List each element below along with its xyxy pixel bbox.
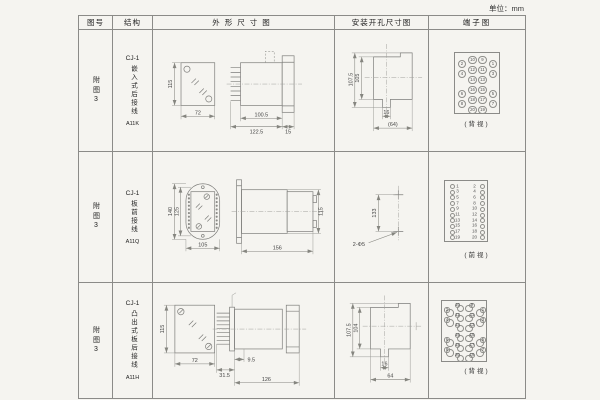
install-drawing-row2: 133 2-Φ5: [335, 152, 428, 282]
header-terminal: 端子图: [429, 16, 525, 30]
terminal-pin-number: 2: [444, 307, 449, 312]
dim-front-width-row2: 105: [198, 242, 207, 248]
terminal-pin: 1: [489, 60, 497, 68]
install-cell-row3: 107.5 104 16 64: [335, 283, 429, 398]
side-view-row1: 100.5 122.5 15: [227, 51, 302, 135]
structure-model-row3: CJ-1: [126, 300, 140, 307]
terminal-pin-number: 14: [455, 323, 460, 328]
unit-label: 单位：mm: [489, 3, 524, 14]
outline-drawing-row2: 140 125 105 156 115: [153, 152, 334, 282]
header-install: 安装开孔尺寸图: [335, 16, 429, 30]
spec-table: 图号 结构 外形尺寸图 安装开孔尺寸图 端子图 附图3 CJ-1 嵌入式后接线 …: [78, 15, 526, 399]
install-cell-row1: 107.5 105 16 (64): [335, 30, 429, 152]
terminal-pin: 12: [468, 66, 476, 74]
terminal-pin-number: 13: [469, 323, 474, 328]
dim-plate-depth-row3: 9.5: [247, 357, 255, 363]
dim-pin-depth-row3: 31.5: [219, 373, 230, 379]
terminal-pin: 14: [468, 76, 476, 84]
terminal-pin: [480, 195, 485, 200]
outline-cell-row2: 140 125 105 156 115: [153, 152, 335, 283]
install-drawing-row1: 107.5 105 16 (64): [335, 30, 428, 151]
terminal-pin-number: 4: [444, 317, 449, 322]
terminal-pin-number: 6: [444, 337, 449, 342]
dim-hole-spacing-row2: 133: [372, 209, 378, 218]
terminal-pin-number: 20: [472, 236, 477, 241]
terminal-cell-row1: 1092112114314131615651817872019 (背视): [429, 30, 525, 152]
terminal-pin-number: 1: [480, 307, 485, 312]
structure-code-row3: A11H: [126, 375, 139, 381]
terminal-view-label-row3: (背视): [429, 365, 525, 375]
terminal-pin: [480, 230, 485, 235]
terminal-pin: [450, 218, 455, 223]
terminal-pin-number: 12: [455, 313, 460, 318]
install-drawing-row3: 107.5 104 16 64: [335, 283, 428, 398]
terminal-pin-number: 10: [455, 303, 460, 308]
fig-no-row1: 附图3: [91, 76, 101, 106]
terminal-pin: 13: [478, 76, 486, 84]
terminal-pin: [450, 230, 455, 235]
terminal-pin: 6: [458, 90, 466, 98]
front-view-row2: 140 125 105: [168, 184, 220, 251]
terminal-diagram-row1: 1092112114314131615651817872019: [454, 52, 500, 114]
terminal-diagram-row2: 1234567891011121314151617181920: [444, 180, 488, 242]
terminal-pin: 19: [478, 106, 486, 114]
dim-flange-depth-row1: 15: [285, 130, 291, 136]
dim-front-width-row1: 72: [195, 110, 201, 116]
dim-width-total-row1: (64): [388, 122, 398, 128]
terminal-pin: [450, 224, 455, 229]
terminal-pin: 16: [468, 86, 476, 94]
terminal-pin: [480, 218, 485, 223]
dim-height-inner-row2: 125: [175, 207, 181, 216]
dim-height-inner-row1: 105: [355, 74, 361, 83]
terminal-pin-number: 7: [480, 347, 485, 352]
structure-cell-row2: CJ-1 板前接线 A11Q: [113, 152, 153, 283]
structure-cell-row1: CJ-1 嵌入式后接线 A11K: [113, 30, 153, 152]
terminal-pin: [450, 190, 455, 195]
terminal-pin: 17: [478, 96, 486, 104]
dim-height-outer-row2: 140: [168, 207, 174, 216]
terminal-pin: 2: [458, 60, 466, 68]
structure-desc-row2: 板前接线: [127, 200, 137, 234]
terminal-pin: 8: [458, 100, 466, 108]
install-cell-row2: 133 2-Φ5: [335, 152, 429, 283]
terminal-pin: [480, 201, 485, 206]
dim-total-depth-row3: 126: [262, 377, 271, 383]
terminal-pin-number: 18: [455, 343, 460, 348]
terminal-pin: [480, 235, 485, 240]
terminal-diagram-row3: 1092112114314131615651817872019: [441, 300, 487, 362]
front-view-row1: 115 72: [168, 63, 215, 120]
terminal-pin: [480, 190, 485, 195]
terminal-pin: 9: [478, 56, 486, 64]
terminal-pin: 7: [489, 100, 497, 108]
terminal-pin-number: 11: [469, 313, 474, 318]
side-view-row3: 9.5 31.5 126: [213, 293, 306, 386]
terminal-pin: [480, 213, 485, 218]
side-view-row2: 156 115: [232, 180, 325, 254]
outline-drawing-row1: 115 72 100.5 122.5 15: [153, 30, 334, 151]
dim-front-height-row1: 115: [168, 80, 174, 89]
terminal-pin: [450, 207, 455, 212]
structure-code-row2: A11Q: [126, 239, 140, 245]
terminal-pin: [450, 201, 455, 206]
header-structure: 结构: [113, 16, 153, 30]
terminal-pin-number: 8: [444, 347, 449, 352]
dim-height-outer-row3: 107.5: [346, 323, 352, 337]
terminal-view-label-row1: (背视): [429, 118, 525, 128]
terminal-pin: 4: [458, 70, 466, 78]
terminal-pin: 10: [468, 56, 476, 64]
dim-height-outer-row1: 107.5: [348, 73, 354, 87]
dim-height-inner-row3: 104: [353, 324, 359, 333]
structure-cell-row3: CJ-1 凸出式板后接线 A11H: [113, 283, 153, 398]
terminal-pin: [480, 184, 485, 189]
terminal-pin: 3: [489, 70, 497, 78]
terminal-pin: 20: [468, 106, 476, 114]
terminal-cell-row3: 1092112114314131615651817872019 (背视): [429, 283, 525, 398]
fig-no-row3: 附图3: [91, 326, 101, 356]
terminal-pin-number: 3: [480, 317, 485, 322]
front-view-row3: 115 72: [160, 305, 215, 367]
terminal-pin: 15: [478, 86, 486, 94]
terminal-pin: 11: [478, 66, 486, 74]
terminal-pin: [450, 195, 455, 200]
structure-desc-row3: 凸出式板后接线: [127, 310, 137, 370]
fig-no-cell-row1: 附图3: [79, 30, 113, 152]
terminal-pin: [450, 235, 455, 240]
dim-slot-width-row3: 16: [381, 362, 387, 368]
terminal-view-label-row2: (前视): [429, 249, 525, 259]
terminal-pin: 5: [489, 90, 497, 98]
structure-code-row1: A11K: [126, 121, 139, 127]
structure-model-row1: CJ-1: [126, 55, 140, 62]
terminal-pin: [450, 213, 455, 218]
dim-front-height-row3: 115: [160, 325, 166, 334]
fig-no-row2: 附图3: [91, 202, 101, 232]
structure-desc-row1: 嵌入式后接线: [127, 65, 137, 116]
terminal-pin-number: 20: [455, 353, 460, 358]
dim-side-height-row2: 115: [318, 207, 324, 216]
dim-width-total-row3: 64: [387, 374, 393, 380]
header-outline: 外形尺寸图: [153, 16, 335, 30]
outline-cell-row3: 115 72 9.5 31.5 126: [153, 283, 335, 398]
terminal-pin-number: 17: [469, 343, 474, 348]
dim-slot-width-row1: 16: [383, 110, 389, 116]
terminal-pin-number: 19: [455, 236, 460, 241]
fig-no-cell-row2: 附图3: [79, 152, 113, 283]
structure-model-row2: CJ-1: [126, 190, 140, 197]
terminal-pin: 18: [468, 96, 476, 104]
terminal-pin: [450, 184, 455, 189]
outline-cell-row1: 115 72 100.5 122.5 15: [153, 30, 335, 152]
terminal-pin-number: 16: [455, 333, 460, 338]
terminal-pin-number: 9: [469, 303, 474, 308]
outline-drawing-row3: 115 72 9.5 31.5 126: [153, 283, 334, 398]
terminal-pin: [480, 207, 485, 212]
terminal-pin: [480, 224, 485, 229]
fig-no-cell-row3: 附图3: [79, 283, 113, 398]
terminal-pin-number: 5: [480, 337, 485, 342]
hole-label-row2: 2-Φ5: [353, 242, 365, 248]
dim-body-depth-row1: 100.5: [255, 112, 269, 118]
terminal-cell-row2: 1234567891011121314151617181920 (前视): [429, 152, 525, 283]
terminal-pin-number: 19: [469, 353, 474, 358]
header-fig-no: 图号: [79, 16, 113, 30]
dim-total-depth-row2: 156: [273, 245, 282, 251]
dim-front-width-row3: 72: [192, 358, 198, 364]
dim-total-depth-row1: 122.5: [250, 130, 264, 136]
terminal-pin-number: 15: [469, 333, 474, 338]
